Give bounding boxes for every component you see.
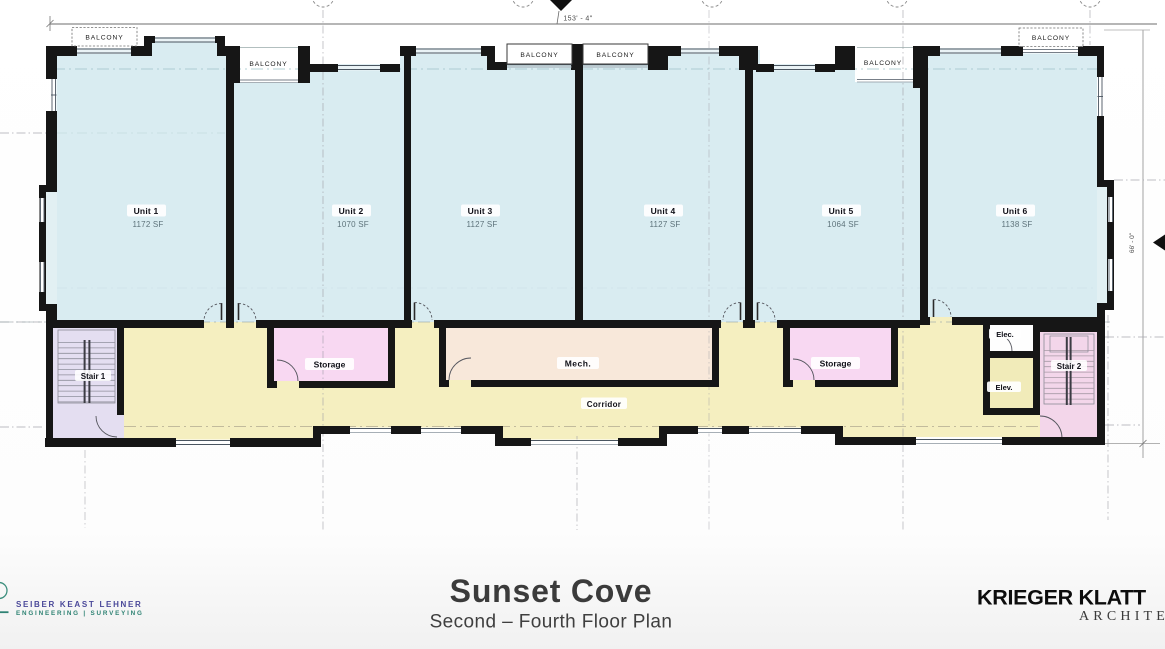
svg-text:Sunset Cove: Sunset Cove <box>450 573 653 609</box>
svg-text:BALCONY: BALCONY <box>1032 35 1070 42</box>
svg-text:BALCONY: BALCONY <box>249 61 287 68</box>
svg-text:BALCONY: BALCONY <box>520 52 558 59</box>
svg-text:Elev.: Elev. <box>996 383 1013 392</box>
svg-text:153' - 4": 153' - 4" <box>563 16 592 23</box>
svg-text:BALCONY: BALCONY <box>864 60 902 67</box>
svg-text:1070 SF: 1070 SF <box>337 220 369 229</box>
svg-text:Unit 4: Unit 4 <box>651 206 676 216</box>
svg-text:1138 SF: 1138 SF <box>1001 220 1032 229</box>
svg-text:ARCHITECTS: ARCHITECTS <box>1079 609 1165 624</box>
svg-text:SEIBER KEAST LEHNER: SEIBER KEAST LEHNER <box>16 600 143 609</box>
svg-text:Stair 1: Stair 1 <box>81 372 106 381</box>
svg-text:Unit 2: Unit 2 <box>339 206 364 216</box>
svg-text:Unit 5: Unit 5 <box>829 206 854 216</box>
svg-text:Stair 2: Stair 2 <box>1057 362 1082 371</box>
svg-text:Corridor: Corridor <box>587 400 621 409</box>
svg-text:KRIEGER KLATT: KRIEGER KLATT <box>977 586 1146 610</box>
svg-text:Second – Fourth Floor Plan: Second – Fourth Floor Plan <box>430 612 673 633</box>
svg-text:BALCONY: BALCONY <box>596 52 634 59</box>
svg-text:1172 SF: 1172 SF <box>132 220 163 229</box>
svg-text:Storage: Storage <box>314 360 346 370</box>
svg-text:Unit 3: Unit 3 <box>468 206 493 216</box>
svg-text:ENGINEERING | SURVEYING: ENGINEERING | SURVEYING <box>16 610 144 617</box>
svg-text:1127 SF: 1127 SF <box>649 220 680 229</box>
svg-text:66' - 0": 66' - 0" <box>1129 232 1136 253</box>
svg-text:Unit 1: Unit 1 <box>134 206 159 216</box>
svg-text:Storage: Storage <box>820 359 852 369</box>
svg-text:1064 SF: 1064 SF <box>827 220 859 229</box>
svg-text:Mech.: Mech. <box>565 359 592 369</box>
svg-text:Unit 6: Unit 6 <box>1003 206 1028 216</box>
svg-text:BALCONY: BALCONY <box>85 35 123 42</box>
svg-text:Elec.: Elec. <box>996 330 1014 339</box>
svg-text:1127 SF: 1127 SF <box>466 220 497 229</box>
